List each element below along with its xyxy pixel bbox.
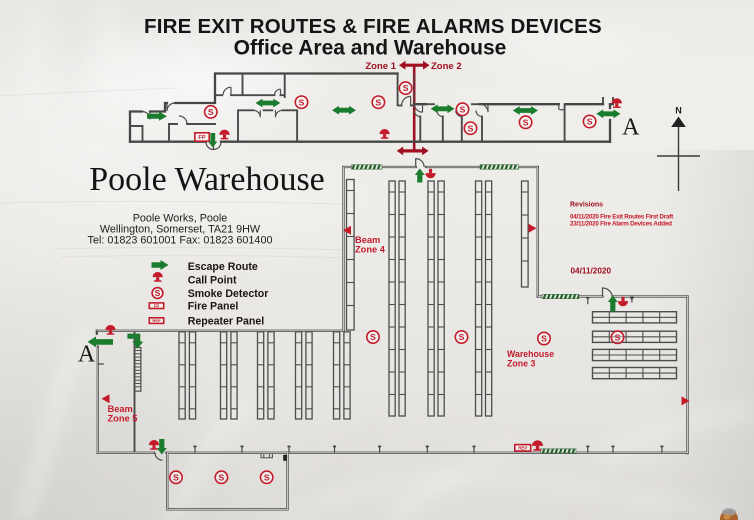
svg-text:S: S <box>370 332 376 342</box>
svg-text:Fire Panel: Fire Panel <box>188 301 239 313</box>
svg-text:S: S <box>219 472 225 482</box>
svg-text:Zone 3: Zone 3 <box>507 359 535 369</box>
svg-text:Escape Route: Escape Route <box>188 261 258 273</box>
svg-text:Poole Warehouse: Poole Warehouse <box>89 161 325 198</box>
svg-text:REP: REP <box>152 318 161 323</box>
svg-text:FIRE EXIT ROUTES & FIRE ALARMS: FIRE EXIT ROUTES & FIRE ALARMS DEVICES <box>144 15 602 38</box>
svg-text:S: S <box>264 472 270 482</box>
svg-text:S: S <box>541 334 547 344</box>
svg-text:REP: REP <box>518 445 527 450</box>
svg-text:Beam: Beam <box>108 404 133 414</box>
svg-text:FP: FP <box>154 303 160 308</box>
svg-text:S: S <box>155 288 161 298</box>
svg-text:Smoke Detector: Smoke Detector <box>188 288 269 300</box>
svg-text:S: S <box>468 123 474 133</box>
svg-text:Beam: Beam <box>355 235 380 245</box>
svg-text:S: S <box>376 97 382 107</box>
svg-text:S: S <box>403 83 409 93</box>
svg-text:23/11/2020 Fire Alarm Devices: 23/11/2020 Fire Alarm Devices Added <box>570 221 672 228</box>
svg-text:04/11/2020 Fire Exit Routes Fi: 04/11/2020 Fire Exit Routes First Draft <box>570 214 674 221</box>
svg-text:Warehouse: Warehouse <box>507 349 554 359</box>
svg-text:Office Area and Warehouse: Office Area and Warehouse <box>234 37 507 60</box>
svg-text:FP: FP <box>198 135 205 141</box>
svg-text:Zone 4: Zone 4 <box>355 245 386 255</box>
svg-text:S: S <box>587 117 593 127</box>
svg-text:A: A <box>78 342 96 368</box>
svg-text:S: S <box>460 104 466 114</box>
svg-text:S: S <box>615 332 621 342</box>
svg-text:Tel: 01823 601001 Fax: 01823 6: Tel: 01823 601001 Fax: 01823 601400 <box>88 235 273 247</box>
svg-text:S: S <box>173 472 179 482</box>
svg-text:S: S <box>208 107 214 117</box>
svg-text:Revisions: Revisions <box>570 202 603 209</box>
svg-text:S: S <box>299 97 305 107</box>
svg-text:Zone 2: Zone 2 <box>431 61 462 72</box>
svg-text:S: S <box>523 117 529 127</box>
svg-text:S: S <box>459 332 465 342</box>
svg-text:04/11/2020: 04/11/2020 <box>571 267 612 276</box>
svg-text:Zone 1: Zone 1 <box>365 61 396 72</box>
svg-text:N: N <box>675 106 682 116</box>
svg-text:Repeater Panel: Repeater Panel <box>188 316 265 328</box>
svg-text:Call Point: Call Point <box>188 274 237 286</box>
svg-text:A: A <box>622 115 640 141</box>
svg-text:Zone 5: Zone 5 <box>108 414 138 424</box>
